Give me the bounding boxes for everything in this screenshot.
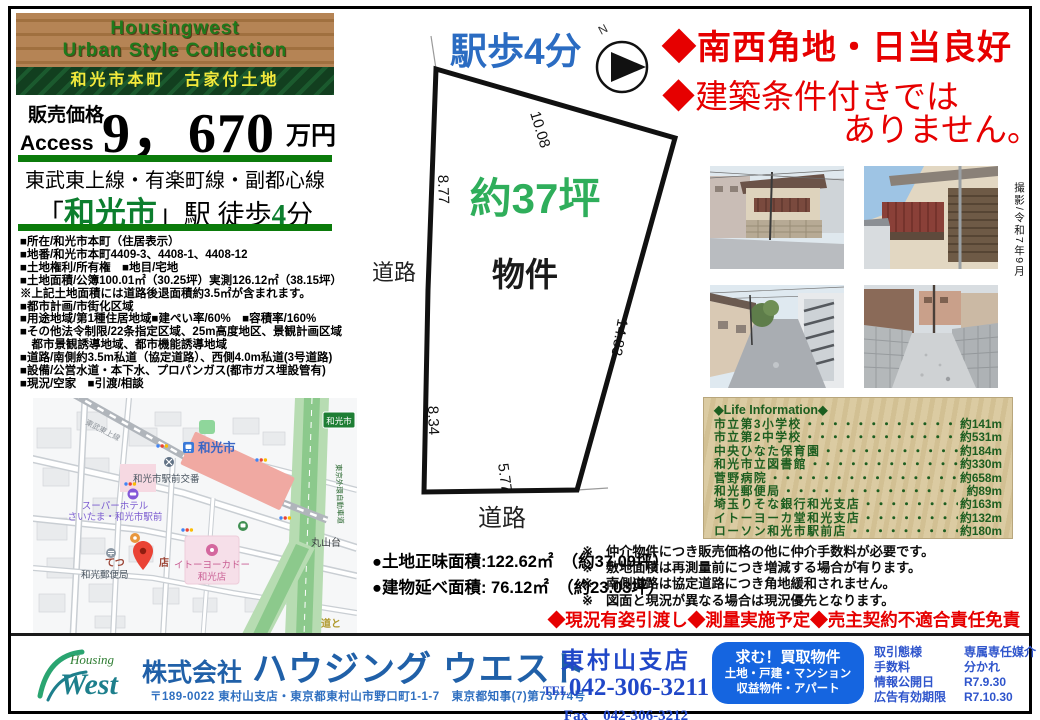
map-koban-label: 和光市駅前交番 xyxy=(133,473,200,485)
life-item: 和光郵便局約89m xyxy=(714,485,1002,498)
dot-leader xyxy=(849,525,958,538)
dot-leader xyxy=(769,472,958,485)
map-hotel-label2: さいたま・和光市駅前 xyxy=(68,511,163,523)
detail-line: ■その他法令制限/22条指定区域、25m高度地区、景観計画区域 xyxy=(20,326,372,339)
footer-divider xyxy=(11,633,1029,636)
photo-date-caption: 撮影/令和7年9月 xyxy=(1012,182,1027,278)
dot-leader xyxy=(804,418,958,431)
flyer-page: Housingwest Urban Style Collection 和光市本町… xyxy=(0,0,1040,720)
delivery-conditions-banner: ◆現況有姿引渡し◆測量実施予定◆売主契約不適合責任免責 xyxy=(545,607,1023,632)
phone-number: TEL042-306-3211 xyxy=(538,675,714,704)
brand-line2: Urban Style Collection xyxy=(16,40,334,62)
company-prefix: 株式会社 xyxy=(142,653,242,689)
map-station-label: 和光市 xyxy=(197,440,236,455)
table-label: 情報公開日 xyxy=(874,675,954,690)
map-road-label: 道と xyxy=(321,617,341,630)
plot-extension-line-bottom xyxy=(577,488,608,490)
map-hotel-label1: スーパーホテル xyxy=(82,501,149,512)
detail-line: ■都市計画/市街化区域 xyxy=(20,301,372,314)
edge-left-lower-dim: 8.34 xyxy=(424,406,442,436)
dot-leader xyxy=(809,458,958,471)
map-mall-label1: イトーヨーカドー xyxy=(174,560,250,571)
life-item: 菅野病院約658m xyxy=(714,472,1002,485)
life-item: ローソン和光市駅前店約180m xyxy=(714,525,1002,538)
detail-line: ■現況/空家 ■引渡/相談 xyxy=(20,378,372,391)
map-shop-label-left: てつ xyxy=(105,557,125,569)
company-name: ハウジング ウエスト xyxy=(252,641,587,692)
photo-balcony-closeup xyxy=(864,166,998,269)
property-details-list: ■所在/和光市本町（住居表示） ■地番/和光市本町4409-3、4408-1、4… xyxy=(20,236,372,391)
land-plot-diagram: 駅歩4分 N 10.08 8.77 14.83 8.34 5.77 約37坪 物… xyxy=(370,18,690,548)
train-station-icon xyxy=(183,442,194,453)
life-item: 市立第3小学校約141m xyxy=(714,418,1002,431)
road-sign-label: 和光市 xyxy=(326,416,352,426)
table-value: R7.10.30 xyxy=(964,690,1036,705)
life-information-title: ◆Life Information◆ xyxy=(714,402,1002,417)
price-label: 販売価格 xyxy=(28,100,104,127)
edge-left-upper-dim: 8.77 xyxy=(434,175,452,205)
location-pin-center xyxy=(140,548,146,554)
plot-area-tsubo: 約37坪 xyxy=(470,175,601,222)
dot-leader xyxy=(783,485,965,498)
restaurant-dot xyxy=(133,536,137,540)
company-name-line: 株式会社 ハウジング ウエスト xyxy=(142,641,587,692)
life-item: 市立第2中学校約531m xyxy=(714,431,1002,444)
bus-stop-glyph xyxy=(241,524,246,528)
note-item: ※仲介物件につき販売価格の他に仲介手数料が必要です。 xyxy=(582,544,1022,560)
plot-bukken-label: 物件 xyxy=(492,256,558,293)
life-item: 埼玉りそな銀行和光支店約163m xyxy=(714,498,1002,511)
brand-wood-panel: Housingwest Urban Style Collection xyxy=(16,13,334,67)
detail-line: ■土地権利/所有権 ■地目/宅地 xyxy=(20,262,372,275)
dot-leader xyxy=(862,512,958,525)
life-information-box: ◆Life Information◆ 市立第3小学校約141m 市立第2中学校約… xyxy=(703,397,1013,539)
plot-walk-title: 駅歩4分 xyxy=(450,31,582,72)
detail-line: ■設備/公営水道・本下水、プロパンガス(都市ガス埋設管有) xyxy=(20,365,372,378)
brand-line1: Housingwest xyxy=(16,18,334,40)
life-item: 和光市立図書館約330m xyxy=(714,458,1002,471)
brand-box: Housingwest Urban Style Collection 和光市本町… xyxy=(16,13,334,95)
detail-line: ■道路/南側約3.5m私道（協定道路）、西側4.0m私道(3号道路) xyxy=(20,352,372,365)
detail-line: ■土地面積/公簿100.01㎡（30.25坪）実測126.12㎡（38.15坪） xyxy=(20,275,372,288)
hotel-bed-glyph xyxy=(130,493,136,496)
map-park xyxy=(199,420,215,434)
detail-line: 都市景観誘導地域、都市機能誘導地域 xyxy=(20,339,372,352)
note-item: ※南側道路は協定道路につき角地緩和されません。 xyxy=(582,576,1022,592)
plot-extension-line-top xyxy=(431,36,436,69)
green-rule-top xyxy=(18,155,332,162)
compass-icon: N xyxy=(596,21,647,92)
branch-contact-block: 東村山支店 TEL042-306-3211 Fax 042-306-3212 xyxy=(538,641,714,720)
map-shop-label-right: 店 xyxy=(159,556,169,569)
neighborhood-map: 東京外環自動車道 東武東上線 和光市 和光市駅前交番 スーパーホテル さいたま・… xyxy=(33,398,357,636)
tel-label: TEL xyxy=(543,683,569,698)
map-mall-label2: 和光店 xyxy=(198,571,227,583)
branch-name: 東村山支店 xyxy=(538,641,714,675)
dot-leader xyxy=(822,445,958,458)
table-label: 手数料 xyxy=(874,660,954,675)
photo-grid xyxy=(710,166,1002,388)
logo-west-text: West xyxy=(60,668,119,701)
life-item: イトーヨーカ堂和光支店約132m xyxy=(714,512,1002,525)
photo-road-walls xyxy=(864,285,998,388)
table-value: R7.9.30 xyxy=(964,675,1036,690)
detail-line: ※上記土地面積には道路後退面積約3.5㎡が含まれます。 xyxy=(20,288,372,301)
price-unit: 万円 xyxy=(286,116,336,152)
road-label-bottom: 道路 xyxy=(478,505,526,532)
table-label: 広告有効期限 xyxy=(874,690,954,705)
detail-line: ■用途地域/第1種住居地域■建ぺい率/60% ■容積率/160% xyxy=(20,313,372,326)
company-logo: Housing West xyxy=(34,646,138,706)
headline-no-conditions-2: ありません。 xyxy=(843,103,1040,151)
green-rule-bottom xyxy=(18,224,332,231)
transaction-info-table: 取引態様専属専任媒介 手数料分かれ 情報公開日R7.9.30 広告有効期限R7.… xyxy=(874,645,1036,705)
logo-housing-text: Housing xyxy=(69,652,115,667)
map-post-office-label: 和光郵便局 xyxy=(81,569,129,581)
detail-line: ■所在/和光市本町（住居表示） xyxy=(20,236,372,249)
company-address: 〒189-0022 東村山支店・東京都東村山市野口町1-1-7 東京都知事(7)… xyxy=(150,688,586,704)
life-item: 中央ひなた保育園約184m xyxy=(714,445,1002,458)
purchase-wanted-box: 求む！買取物件 土地・戸建・マンション 収益物件・アパート xyxy=(712,642,864,704)
mall-pin-dot xyxy=(210,548,214,552)
fax-number: Fax 042-306-3212 xyxy=(538,704,714,720)
headline-corner-lot: ◆南西角地・日当良好 xyxy=(662,20,1012,69)
table-value: 専属専任媒介 xyxy=(964,645,1036,660)
map-highway-label: 東京外環自動車道 xyxy=(334,464,346,525)
table-value: 分かれ xyxy=(964,660,1036,675)
map-maruyamadai-label: 丸山台 xyxy=(311,536,341,549)
disclaimer-notes: ※仲介物件につき販売価格の他に仲介手数料が必要です。 ※敷地面積は再測量前につき… xyxy=(582,544,1022,609)
photo-street-view xyxy=(710,285,844,388)
road-label-left: 道路 xyxy=(372,260,416,285)
dot-leader xyxy=(862,498,958,511)
access-label: Access xyxy=(20,132,94,156)
dot-leader xyxy=(804,431,958,444)
compass-n-label: N xyxy=(596,21,610,37)
note-item: ※敷地面積は再測量前につき増減する場合が有ります。 xyxy=(582,560,1022,576)
photo-exterior-front xyxy=(710,166,844,269)
detail-line: ■地番/和光市本町4409-3、4408-1、4408-12 xyxy=(20,249,372,262)
table-label: 取引態様 xyxy=(874,645,954,660)
